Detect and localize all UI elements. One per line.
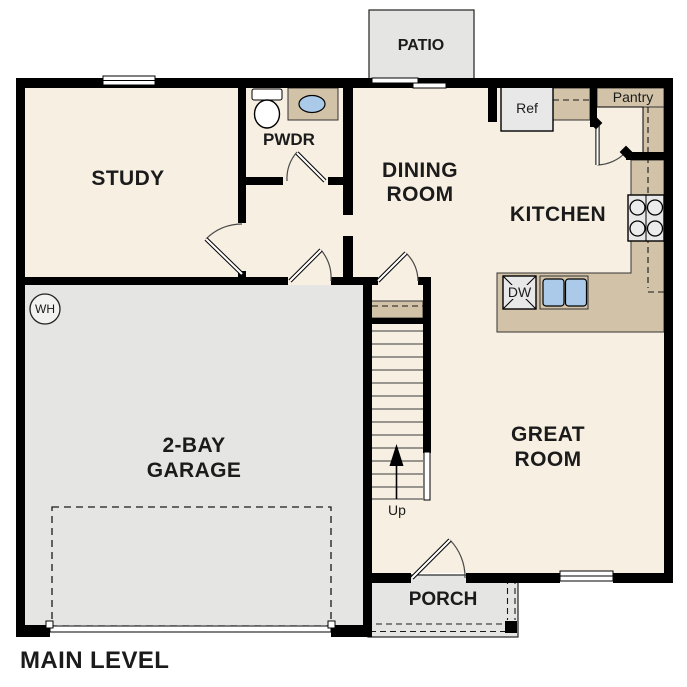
garage-label-line2: GARAGE xyxy=(147,459,242,482)
powder-room-label: PWDR xyxy=(263,130,315,149)
garage-label-line1: 2-BAY xyxy=(162,434,225,457)
pantry-shelf-side xyxy=(643,107,664,153)
range-icon xyxy=(628,195,664,241)
plan-title: MAIN LEVEL xyxy=(20,647,169,674)
study-label: STUDY xyxy=(91,167,164,190)
dishwasher-label: DW xyxy=(508,284,532,300)
dining-room-label-line2: ROOM xyxy=(387,183,454,206)
patio-label: PATIO xyxy=(398,37,445,54)
refrigerator-label: Ref xyxy=(516,100,538,116)
kitchen-sink-icon xyxy=(540,276,588,309)
garage-door-track-mark xyxy=(328,621,335,628)
pantry-label: Pantry xyxy=(613,89,653,105)
great-room-label-line1: GREAT xyxy=(511,423,585,446)
floor-plan: STUDY PWDR DINING ROOM KITCHEN GREAT ROO… xyxy=(0,0,687,687)
water-heater-label: WH xyxy=(35,302,55,316)
dining-room-label-line1: DINING xyxy=(382,159,458,182)
porch-label: PORCH xyxy=(409,589,478,610)
closet-shelf xyxy=(370,301,423,318)
stairs-up-label: Up xyxy=(388,502,406,518)
great-room-label-line2: ROOM xyxy=(515,448,582,471)
kitchen-label: KITCHEN xyxy=(510,203,606,226)
garage-door-track-mark xyxy=(46,621,53,628)
stair-railing xyxy=(424,452,430,500)
study-window-icon xyxy=(103,76,155,85)
porch-post xyxy=(505,621,517,633)
toilet-icon xyxy=(252,89,282,128)
floor-plan-page: STUDY PWDR DINING ROOM KITCHEN GREAT ROO… xyxy=(0,0,687,687)
great-room-window-icon xyxy=(560,571,613,581)
counter-by-fridge xyxy=(553,88,590,120)
garage-door-icon xyxy=(50,626,331,632)
powder-sink-icon xyxy=(299,96,325,113)
